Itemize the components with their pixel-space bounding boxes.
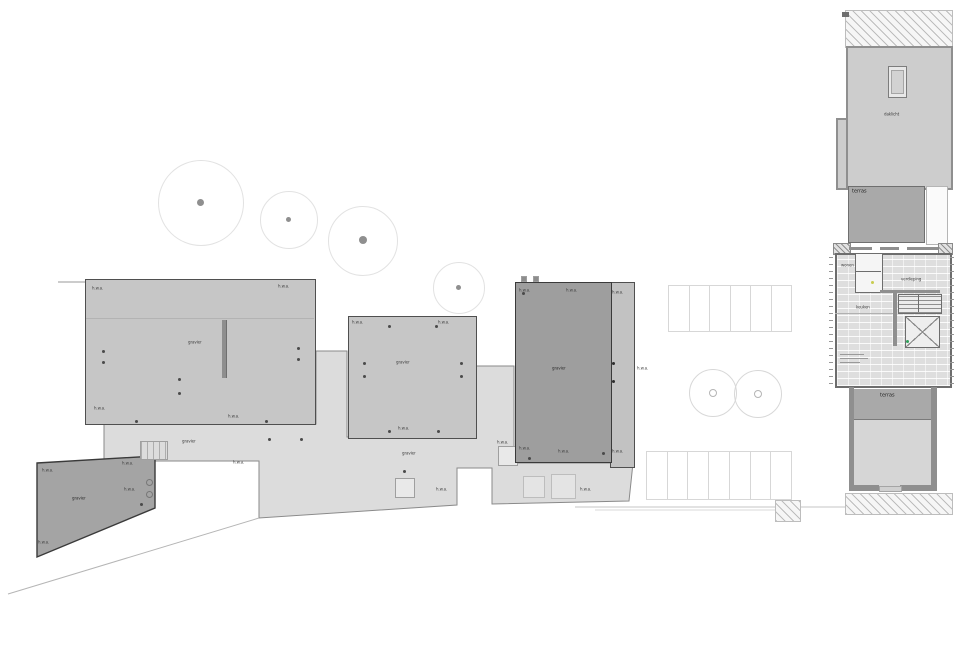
drain-note: h.w.a. xyxy=(352,320,363,325)
skylight-box xyxy=(551,474,576,499)
roof-drain-dot xyxy=(297,347,300,350)
stair-landing-line xyxy=(918,294,919,312)
pavement-hatch xyxy=(775,500,801,522)
tree-trunk-icon xyxy=(709,389,717,397)
room-label: wonen xyxy=(841,263,854,268)
garden xyxy=(854,420,931,486)
note-line xyxy=(840,358,868,359)
roof-drain-dot xyxy=(528,457,531,460)
interior-wall xyxy=(893,292,897,346)
roof-drain-dot xyxy=(388,430,391,433)
facade-marker xyxy=(612,380,615,383)
facade-marker xyxy=(612,362,615,365)
interior-wall xyxy=(880,290,940,293)
roof-drain-dot xyxy=(435,325,438,328)
terrace-label: terras xyxy=(852,189,867,194)
roof-drain-dot xyxy=(135,420,138,423)
roof-ridge-line xyxy=(86,318,314,319)
plaza-surface-label: gravier xyxy=(402,451,416,456)
terrace-label: terras xyxy=(880,393,895,398)
exterior-steps xyxy=(140,441,168,460)
parking-stall xyxy=(750,286,771,331)
garden-wall-bottom xyxy=(900,485,937,491)
plaza-drain-note: h.w.a. xyxy=(497,440,508,445)
roof-label: gravier xyxy=(552,366,566,371)
plaza-point xyxy=(268,438,271,441)
roof-label: gravier xyxy=(188,340,202,345)
drain-note: h.w.a. xyxy=(228,414,239,419)
parking-stall xyxy=(750,452,771,499)
dimension-ticks-right xyxy=(950,253,954,384)
drain-note: h.w.a. xyxy=(124,487,135,492)
tree-trunk-icon xyxy=(456,285,461,290)
roof-drain-dot xyxy=(102,361,105,364)
parking-stall xyxy=(771,286,792,331)
roof-drain-dot xyxy=(297,358,300,361)
roof-drain-dot xyxy=(178,392,181,395)
tree xyxy=(328,206,398,276)
skylight-box xyxy=(523,476,545,498)
parking-stall xyxy=(667,452,688,499)
parking-row-upper xyxy=(668,285,792,332)
parking-stall xyxy=(687,452,708,499)
building-c-side-strip xyxy=(610,282,635,468)
roof-drain-dot xyxy=(140,503,143,506)
facade-wall xyxy=(849,247,938,250)
drain-note: h.w.a. xyxy=(92,286,103,291)
roof-label: gravier xyxy=(396,360,410,365)
street-hatch-top xyxy=(845,10,953,48)
roof-drain-dot xyxy=(460,375,463,378)
floor-note: verdieping xyxy=(901,277,921,282)
parking-stall xyxy=(729,452,750,499)
tree-trunk-icon xyxy=(754,390,762,398)
building-c-roof xyxy=(515,282,612,463)
door-opening xyxy=(899,247,907,250)
drain-note: h.w.a. xyxy=(398,426,409,431)
parking-stall xyxy=(689,286,710,331)
drain-note: h.w.a. xyxy=(438,320,449,325)
garden-wall-right xyxy=(931,387,937,488)
tree-trunk-icon xyxy=(197,199,204,206)
drain-note: h.w.a. xyxy=(278,284,289,289)
roof-drain-dot xyxy=(522,292,525,295)
roof-vent xyxy=(533,276,539,282)
drain-note: h.w.a. xyxy=(612,449,623,454)
roof-drain-ring xyxy=(146,491,153,498)
roof-drain-dot xyxy=(363,362,366,365)
plaza-surface-label: gravier xyxy=(182,439,196,444)
room-label: keuken xyxy=(856,305,870,310)
staircase xyxy=(898,294,942,314)
door-opening xyxy=(872,247,880,250)
drain-note: h.w.a. xyxy=(566,288,577,293)
roof-drain-dot xyxy=(102,350,105,353)
parking-stall xyxy=(730,286,751,331)
dimension-ticks-left xyxy=(829,253,833,384)
tree xyxy=(433,262,485,314)
parking-stall xyxy=(669,286,689,331)
core-room-divider xyxy=(855,271,881,272)
parking-stall xyxy=(709,286,730,331)
plaza-drain-note: h.w.a. xyxy=(580,487,591,492)
skylight-inner xyxy=(891,70,904,94)
parking-stall xyxy=(770,452,791,499)
building-a-roof xyxy=(85,279,316,425)
parking-stall xyxy=(708,452,729,499)
building-b-roof xyxy=(348,316,477,439)
drain-note: h.w.a. xyxy=(122,461,133,466)
drain-note: h.w.a. xyxy=(612,290,623,295)
drain-note: h.w.a. xyxy=(558,449,569,454)
roof-drain-dot xyxy=(460,362,463,365)
garden-wall-bottom xyxy=(849,485,879,491)
tree xyxy=(158,160,244,246)
roof-drain-dot xyxy=(178,378,181,381)
drain-note: h.w.a. xyxy=(94,406,105,411)
garden-gate xyxy=(879,486,902,492)
site-plan-drawing: gravier gravier h.w.a. h.w.a. h.w.a. h.w… xyxy=(0,0,957,652)
tree-trunk-icon xyxy=(286,217,291,222)
drain-note: h.w.a. xyxy=(42,468,53,473)
street-hatch-bottom xyxy=(845,493,953,515)
drain-note: h.w.a. xyxy=(38,540,49,545)
marker-green xyxy=(906,340,909,343)
terrace-upper xyxy=(848,186,925,243)
roof-drain-dot xyxy=(363,375,366,378)
tree xyxy=(689,369,737,417)
tree xyxy=(260,191,318,249)
plaza-point xyxy=(403,470,406,473)
roof-drain-dot xyxy=(388,325,391,328)
core-room xyxy=(855,253,883,293)
plaza-detail-box xyxy=(395,478,415,498)
skylight-label: daklicht xyxy=(884,112,899,117)
building-d-roof xyxy=(37,456,155,557)
marker-yellow xyxy=(871,281,874,284)
void-shaft xyxy=(905,316,940,348)
plaza-drain-note: h.w.a. xyxy=(436,487,447,492)
tree xyxy=(734,370,782,418)
side-passage xyxy=(926,186,948,245)
plaza-point xyxy=(300,438,303,441)
roof-label: gravier xyxy=(72,496,86,501)
note-line xyxy=(840,354,864,355)
roof-drain-ring xyxy=(146,479,153,486)
roof-vent xyxy=(521,276,527,282)
facade-note: h.w.a. xyxy=(637,366,648,371)
parking-stall xyxy=(647,452,667,499)
plaza-drain-note: h.w.a. xyxy=(233,460,244,465)
parking-row-lower xyxy=(646,451,792,500)
tree-trunk-icon xyxy=(359,236,367,244)
roof-drain-dot xyxy=(437,430,440,433)
note-line xyxy=(840,362,860,363)
floor-joint-line xyxy=(835,313,893,314)
roof-drain-dot xyxy=(602,452,605,455)
plan-corner-mark xyxy=(842,12,849,17)
roof-drain-dot xyxy=(265,420,268,423)
drain-note: h.w.a. xyxy=(519,446,530,451)
roof-wall-bar xyxy=(222,320,227,378)
